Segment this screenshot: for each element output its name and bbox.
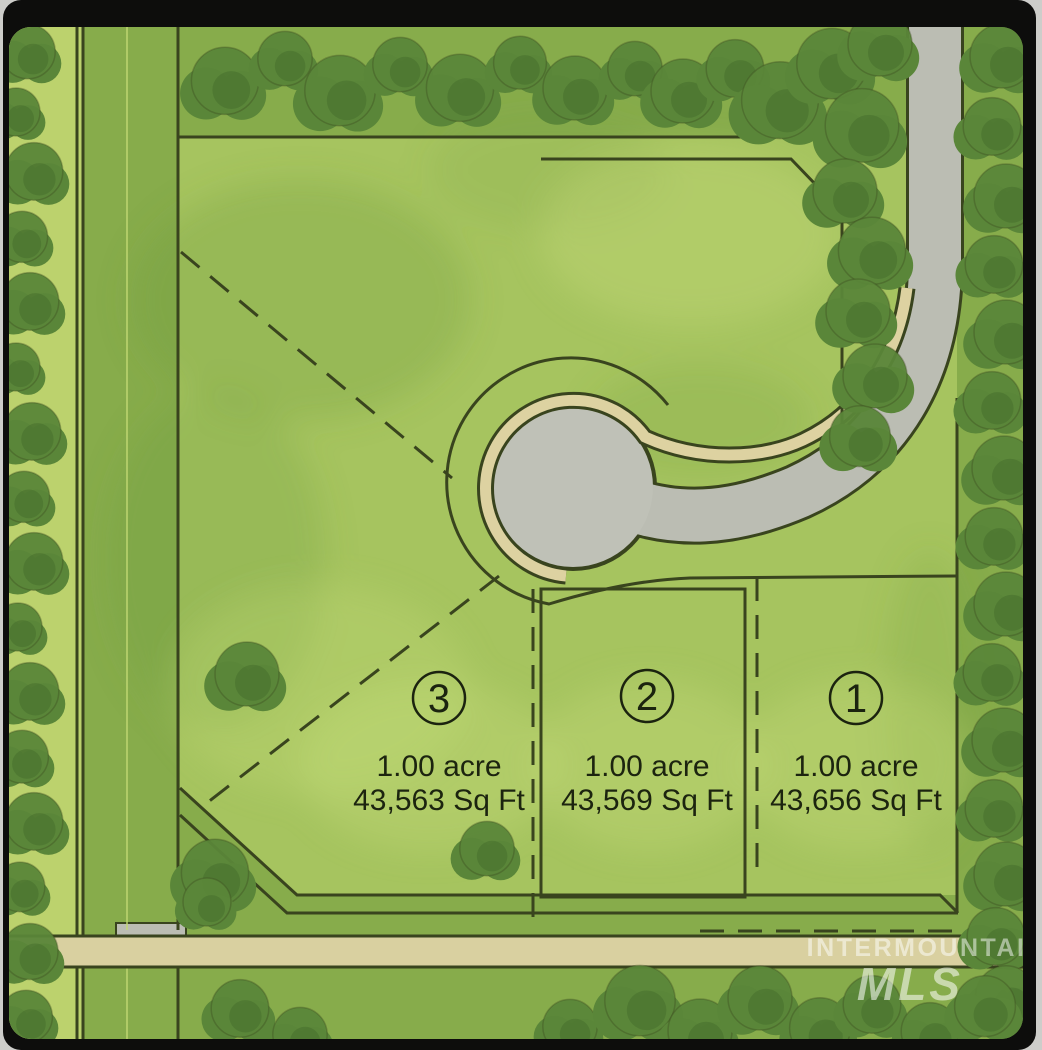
- plat-map: 3 1.00 acre 43,563 Sq Ft 2 1.00 acre 43,…: [0, 12, 1042, 1050]
- plat-map-screenshot: 3 1.00 acre 43,563 Sq Ft 2 1.00 acre 43,…: [0, 0, 1042, 1050]
- watermark-mls-logo: MLS: [857, 958, 963, 1010]
- lot-number: 2: [636, 675, 658, 719]
- plat-map-svg: 3 1.00 acre 43,563 Sq Ft 2 1.00 acre 43,…: [0, 0, 1042, 1050]
- lot-number: 1: [845, 677, 867, 721]
- lot-sqft: 43,656 Sq Ft: [770, 784, 942, 817]
- lot-sqft: 43,569 Sq Ft: [561, 784, 733, 817]
- lot-number: 3: [428, 677, 450, 721]
- lot-acreage: 1.00 acre: [584, 750, 709, 783]
- lot-acreage: 1.00 acre: [376, 750, 501, 783]
- lot-sqft: 43,563 Sq Ft: [353, 784, 525, 817]
- lot-acreage: 1.00 acre: [793, 750, 918, 783]
